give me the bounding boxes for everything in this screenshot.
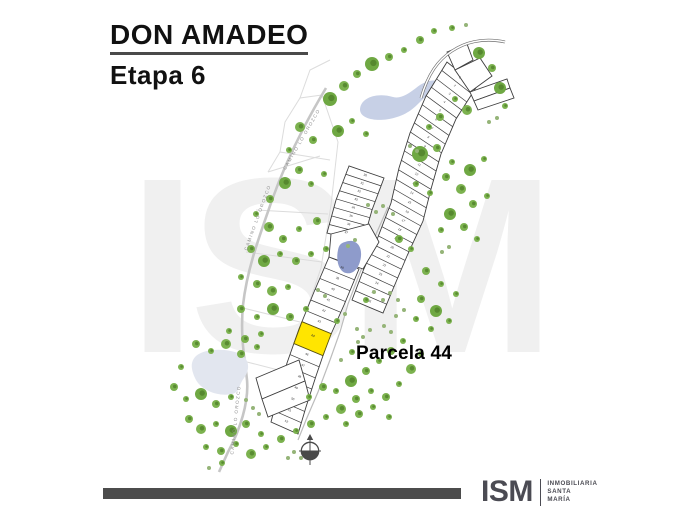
logo-line-2: SANTA bbox=[547, 488, 597, 496]
tree-core bbox=[398, 382, 401, 385]
tree-core bbox=[260, 432, 263, 435]
tree-core bbox=[240, 352, 244, 356]
tree-core bbox=[263, 257, 268, 262]
tree-core bbox=[365, 369, 369, 373]
tree-core bbox=[279, 252, 282, 255]
tree bbox=[381, 204, 385, 208]
tree-core bbox=[370, 389, 373, 392]
tree-core bbox=[310, 182, 313, 185]
tree-core bbox=[388, 415, 391, 418]
tree-core bbox=[435, 307, 440, 312]
tree-core bbox=[445, 175, 449, 179]
tree-core bbox=[365, 298, 368, 301]
tree-core bbox=[385, 395, 389, 399]
tree-core bbox=[235, 442, 238, 445]
tree-core bbox=[210, 349, 213, 352]
tree-core bbox=[433, 29, 436, 32]
tree-core bbox=[325, 415, 328, 418]
tree-core bbox=[415, 182, 418, 185]
logo-line-3: MARÍA bbox=[547, 496, 597, 504]
tree-core bbox=[272, 305, 277, 310]
tree-core bbox=[268, 224, 273, 229]
tree-core bbox=[295, 429, 298, 432]
tree-core bbox=[284, 179, 289, 184]
tree-core bbox=[440, 282, 443, 285]
tree-core bbox=[316, 219, 320, 223]
tree-core bbox=[469, 166, 474, 171]
tree bbox=[286, 456, 290, 460]
tree-core bbox=[448, 319, 451, 322]
tree-core bbox=[215, 422, 218, 425]
tree-core bbox=[245, 422, 249, 426]
tree-core bbox=[402, 339, 405, 342]
logo-company-name: INMOBILIARIA SANTA MARÍA bbox=[547, 480, 597, 503]
tree-core bbox=[370, 60, 376, 66]
tree bbox=[292, 450, 296, 454]
tree bbox=[251, 406, 255, 410]
tree bbox=[391, 212, 395, 216]
tree-core bbox=[356, 72, 360, 76]
tree-core bbox=[403, 48, 406, 51]
tree-core bbox=[312, 138, 316, 142]
tree bbox=[382, 324, 386, 328]
tree-core bbox=[436, 146, 440, 150]
tree bbox=[353, 238, 357, 242]
tree bbox=[366, 203, 370, 207]
tree-core bbox=[455, 292, 458, 295]
tree-core bbox=[240, 307, 244, 311]
tree-core bbox=[418, 149, 425, 156]
tree-core bbox=[454, 97, 457, 100]
tree-core bbox=[478, 49, 483, 54]
tree-core bbox=[355, 397, 359, 401]
tree-core bbox=[250, 247, 254, 251]
tree-core bbox=[308, 395, 311, 398]
tree bbox=[244, 398, 248, 402]
tree bbox=[408, 144, 412, 148]
tree bbox=[346, 244, 350, 248]
tree-core bbox=[323, 172, 326, 175]
tree-core bbox=[280, 437, 284, 441]
tree-core bbox=[476, 237, 479, 240]
tree-core bbox=[200, 390, 205, 395]
tree-core bbox=[220, 449, 224, 453]
tree-core bbox=[305, 307, 308, 310]
title-block: DON AMADEO Etapa 6 bbox=[110, 20, 308, 91]
logo-ism-text: ISM bbox=[481, 477, 533, 507]
tree bbox=[299, 456, 303, 460]
tree bbox=[257, 412, 261, 416]
tree bbox=[447, 245, 451, 249]
tree-core bbox=[463, 225, 467, 229]
tree-core bbox=[325, 247, 328, 250]
tree bbox=[381, 298, 385, 302]
tree-core bbox=[188, 417, 192, 421]
tree bbox=[415, 149, 419, 153]
tree bbox=[388, 291, 392, 295]
tree-core bbox=[265, 445, 268, 448]
tree-core bbox=[466, 107, 471, 112]
tree-core bbox=[256, 345, 259, 348]
tree bbox=[402, 308, 406, 312]
tree-core bbox=[340, 406, 345, 411]
highlight-parcel-label: Parcela 44 bbox=[356, 343, 452, 365]
tree-core bbox=[225, 341, 230, 346]
tree bbox=[316, 288, 320, 292]
tree-core bbox=[451, 26, 454, 29]
tree-core bbox=[410, 247, 413, 250]
tree-core bbox=[372, 405, 375, 408]
plan-canvas: DON AMADEO Etapa 6 ISM 44 12345678910111… bbox=[0, 0, 680, 510]
page-title: DON AMADEO bbox=[110, 20, 308, 55]
tree-core bbox=[429, 191, 432, 194]
tree-core bbox=[256, 282, 260, 286]
tree-core bbox=[486, 194, 489, 197]
tree-core bbox=[358, 412, 362, 416]
tree-core bbox=[350, 377, 355, 382]
tree bbox=[487, 120, 491, 124]
tree-core bbox=[271, 288, 276, 293]
tree bbox=[323, 294, 327, 298]
tree-core bbox=[230, 395, 233, 398]
tree-core bbox=[504, 104, 507, 107]
tree bbox=[361, 335, 365, 339]
site-map: ISM 44 123456789101112131415161718192021… bbox=[0, 0, 680, 510]
tree bbox=[394, 314, 398, 318]
tree-core bbox=[345, 422, 348, 425]
tree-core bbox=[410, 366, 415, 371]
tree-core bbox=[343, 83, 348, 88]
tree-core bbox=[282, 237, 286, 241]
tree-core bbox=[180, 365, 183, 368]
tree-core bbox=[287, 285, 290, 288]
tree-core bbox=[205, 445, 208, 448]
tree-core bbox=[365, 132, 368, 135]
logo-line-1: INMOBILIARIA bbox=[547, 480, 597, 488]
tree-core bbox=[439, 115, 443, 119]
tree-core bbox=[298, 227, 301, 230]
tree-core bbox=[295, 259, 299, 263]
tree-core bbox=[173, 385, 177, 389]
tree-core bbox=[491, 66, 495, 70]
tree-core bbox=[299, 124, 304, 129]
tree-core bbox=[336, 319, 339, 322]
tree-core bbox=[449, 210, 454, 215]
tree-core bbox=[398, 237, 402, 241]
tree-core bbox=[310, 252, 313, 255]
compass-icon bbox=[299, 434, 321, 465]
tree-core bbox=[335, 389, 338, 392]
tree-core bbox=[425, 269, 429, 273]
tree bbox=[207, 466, 211, 470]
tree-core bbox=[420, 297, 424, 301]
tree-core bbox=[288, 148, 291, 151]
tree-core bbox=[185, 397, 188, 400]
page-subtitle: Etapa 6 bbox=[110, 60, 308, 91]
footer-bar bbox=[103, 488, 461, 499]
tree-core bbox=[415, 317, 418, 320]
tree-core bbox=[499, 84, 504, 89]
tree-core bbox=[244, 337, 248, 341]
tree bbox=[374, 210, 378, 214]
tree bbox=[339, 358, 343, 362]
tree-core bbox=[200, 426, 205, 431]
tree bbox=[343, 312, 347, 316]
tree-core bbox=[328, 95, 334, 101]
tree bbox=[396, 298, 400, 302]
tree-core bbox=[337, 127, 342, 132]
tree bbox=[389, 330, 393, 334]
tree-core bbox=[460, 186, 465, 191]
tree-core bbox=[428, 125, 431, 128]
tree-core bbox=[250, 451, 255, 456]
tree bbox=[495, 116, 499, 120]
tree-core bbox=[260, 332, 263, 335]
tree-core bbox=[351, 350, 354, 353]
tree-core bbox=[440, 228, 443, 231]
tree-core bbox=[322, 385, 326, 389]
tree-core bbox=[221, 461, 224, 464]
tree-core bbox=[298, 168, 302, 172]
tree-core bbox=[269, 197, 273, 201]
tree-core bbox=[451, 160, 454, 163]
logo-divider bbox=[540, 479, 542, 506]
tree-core bbox=[289, 315, 293, 319]
tree-core bbox=[310, 422, 314, 426]
tree bbox=[464, 23, 468, 27]
tree-core bbox=[240, 275, 243, 278]
tree-core bbox=[483, 157, 486, 160]
tree-core bbox=[215, 402, 219, 406]
company-logo: ISM INMOBILIARIA SANTA MARÍA bbox=[481, 477, 598, 507]
tree-core bbox=[256, 315, 259, 318]
tree-core bbox=[388, 55, 392, 59]
tree bbox=[355, 327, 359, 331]
tree-core bbox=[430, 327, 433, 330]
tree bbox=[372, 290, 376, 294]
tree bbox=[368, 328, 372, 332]
tree-core bbox=[472, 202, 476, 206]
tree bbox=[440, 250, 444, 254]
tree-core bbox=[228, 329, 231, 332]
tree-core bbox=[419, 38, 423, 42]
tree-core bbox=[351, 119, 354, 122]
tree-core bbox=[195, 342, 199, 346]
